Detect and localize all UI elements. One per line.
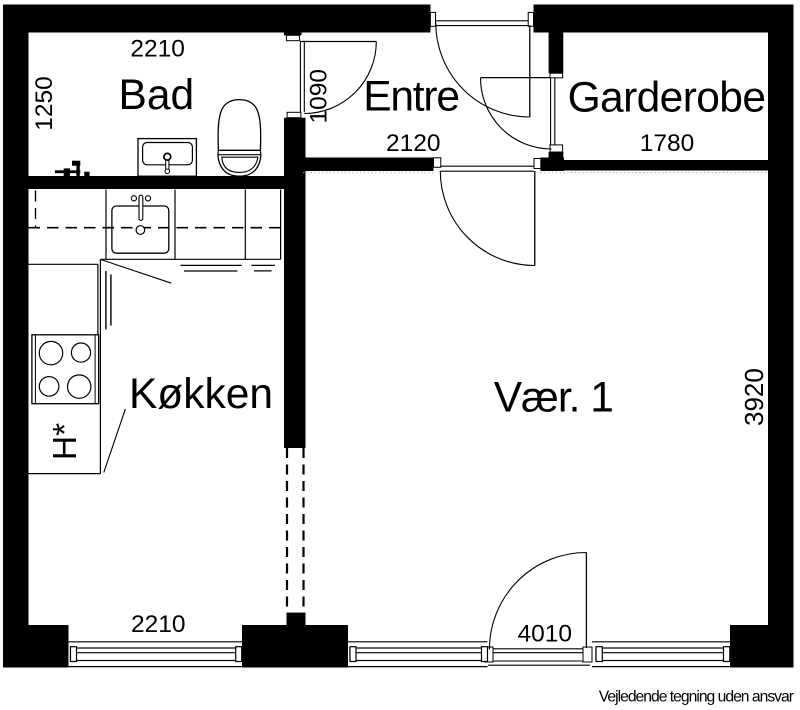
svg-text:1090: 1090 [305,69,332,124]
svg-text:H*: H* [47,423,84,460]
svg-text:4010: 4010 [518,621,573,648]
svg-text:Vær. 1: Vær. 1 [494,374,613,421]
svg-text:2210: 2210 [130,36,185,63]
svg-text:Køkken: Køkken [129,371,273,418]
svg-text:Bad: Bad [118,72,194,119]
svg-text:2210: 2210 [131,611,186,638]
svg-text:1780: 1780 [640,130,695,157]
svg-text:Entre: Entre [363,73,459,120]
svg-text:3920: 3920 [739,368,769,426]
svg-text:1250: 1250 [31,76,58,131]
svg-text:2120: 2120 [386,130,441,157]
svg-text:Vejledende tegning uden ansvar: Vejledende tegning uden ansvar [599,688,794,705]
svg-text:Garderobe: Garderobe [568,75,766,122]
